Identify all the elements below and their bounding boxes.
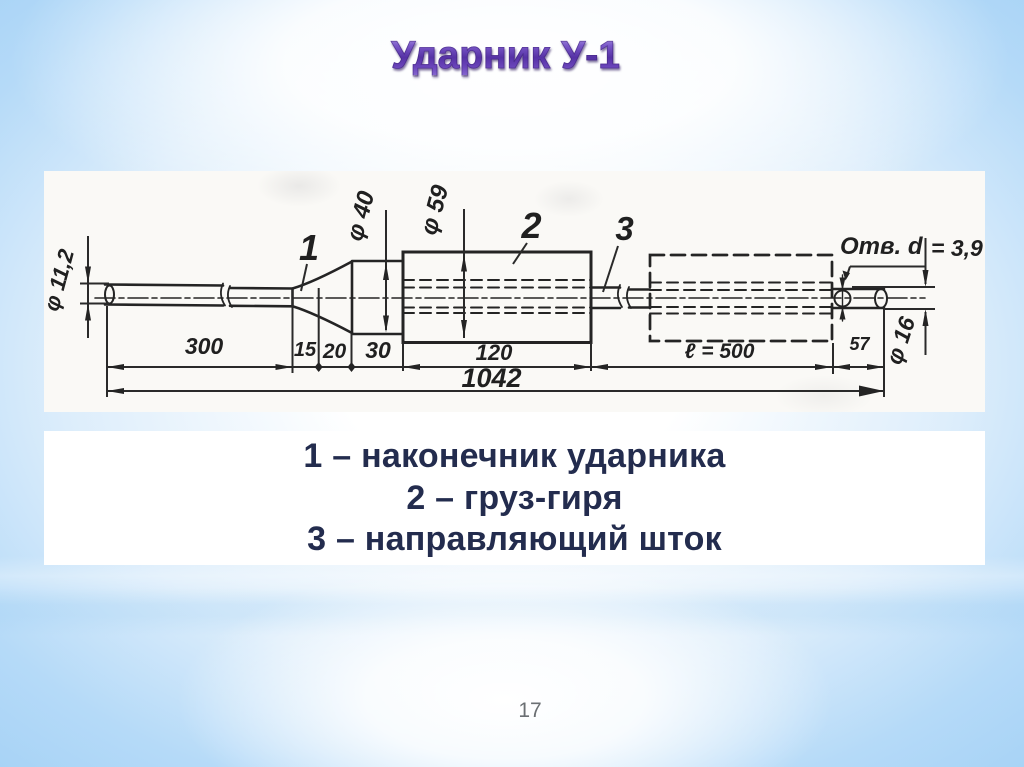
svg-text:1: 1: [299, 227, 319, 268]
svg-text:15: 15: [294, 339, 317, 361]
svg-text:φ 16: φ 16: [881, 313, 921, 367]
svg-text:Отв. d: Отв. d: [840, 233, 924, 260]
svg-text:120: 120: [476, 340, 513, 365]
svg-text:57: 57: [849, 334, 870, 354]
svg-text:ℓ = 500: ℓ = 500: [685, 340, 755, 363]
svg-text:φ 40: φ 40: [341, 188, 380, 244]
svg-text:1042: 1042: [461, 363, 521, 393]
svg-text:2: 2: [520, 205, 541, 246]
svg-text:= 3,9: = 3,9: [931, 235, 983, 261]
svg-text:20: 20: [322, 340, 347, 363]
svg-text:30: 30: [365, 337, 391, 363]
svg-text:φ 59: φ 59: [415, 182, 454, 238]
svg-text:φ 11,2: φ 11,2: [47, 246, 79, 314]
svg-text:300: 300: [185, 333, 224, 359]
svg-text:3: 3: [615, 210, 633, 247]
